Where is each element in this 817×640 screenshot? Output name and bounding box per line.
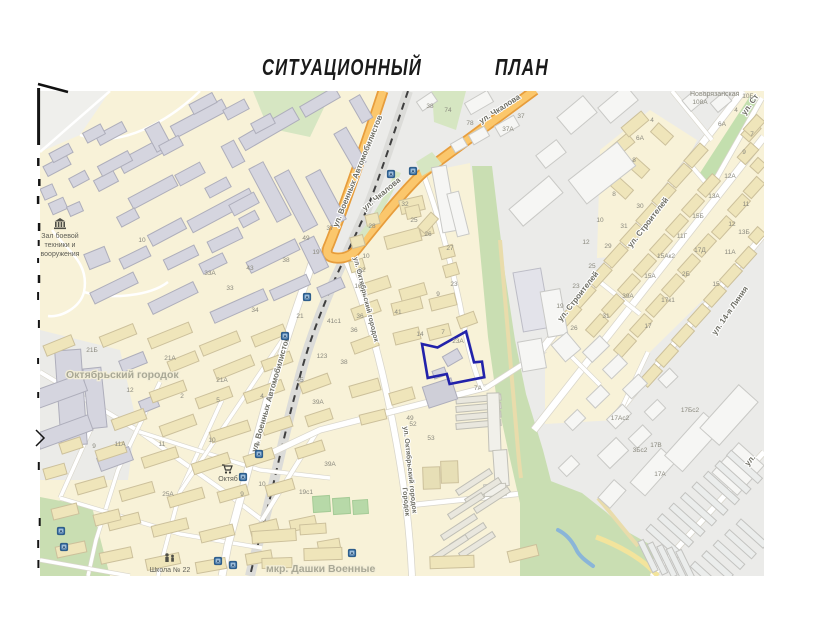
svg-text:25: 25 xyxy=(588,263,596,270)
svg-text:4: 4 xyxy=(650,117,654,124)
svg-text:10: 10 xyxy=(258,481,266,488)
svg-text:15Ак2: 15Ак2 xyxy=(657,253,675,260)
svg-text:39А: 39А xyxy=(622,293,634,300)
svg-text:21: 21 xyxy=(296,313,304,320)
svg-text:15А: 15А xyxy=(644,273,656,280)
svg-text:37: 37 xyxy=(326,225,334,232)
svg-text:26: 26 xyxy=(570,325,578,332)
svg-text:Школа № 22: Школа № 22 xyxy=(150,567,191,574)
svg-text:11Г: 11Г xyxy=(677,233,688,240)
svg-text:10: 10 xyxy=(596,217,604,224)
svg-text:26: 26 xyxy=(424,231,432,238)
svg-text:21А: 21А xyxy=(216,377,228,384)
svg-text:11: 11 xyxy=(743,201,750,208)
svg-text:41: 41 xyxy=(394,309,402,316)
svg-text:8: 8 xyxy=(256,441,260,448)
svg-text:30: 30 xyxy=(636,203,644,210)
svg-text:12: 12 xyxy=(728,221,736,228)
svg-text:53: 53 xyxy=(427,435,435,442)
svg-text:17А: 17А xyxy=(654,471,666,478)
svg-text:33А: 33А xyxy=(204,270,216,277)
svg-text:78: 78 xyxy=(466,120,474,127)
svg-text:16: 16 xyxy=(354,283,362,290)
svg-text:36: 36 xyxy=(350,327,358,334)
svg-text:14: 14 xyxy=(416,331,424,338)
svg-text:27: 27 xyxy=(446,245,454,252)
svg-text:8: 8 xyxy=(612,191,616,198)
svg-text:вооружения: вооружения xyxy=(41,251,80,258)
svg-text:ПЛАН: ПЛАН xyxy=(495,56,549,81)
svg-text:36: 36 xyxy=(356,313,364,320)
svg-text:19: 19 xyxy=(556,303,564,310)
svg-text:Новорязанская: Новорязанская xyxy=(690,91,740,98)
svg-text:32: 32 xyxy=(401,201,409,208)
svg-text:38: 38 xyxy=(426,103,434,110)
svg-text:37: 37 xyxy=(517,113,525,120)
svg-text:17Ас2: 17Ас2 xyxy=(611,415,630,422)
svg-text:6А: 6А xyxy=(718,121,727,128)
svg-text:17Бс2: 17Бс2 xyxy=(681,407,700,414)
svg-text:12А: 12А xyxy=(724,173,736,180)
svg-text:45: 45 xyxy=(296,377,304,384)
svg-text:5: 5 xyxy=(216,397,220,404)
svg-text:23: 23 xyxy=(450,281,458,288)
svg-text:9: 9 xyxy=(240,491,244,498)
svg-text:21А: 21А xyxy=(164,355,176,362)
svg-text:13Б: 13Б xyxy=(738,229,750,236)
svg-text:34: 34 xyxy=(251,307,259,314)
svg-text:4: 4 xyxy=(260,393,264,400)
svg-text:19с1: 19с1 xyxy=(299,489,313,496)
svg-text:Зал боевой: Зал боевой xyxy=(41,232,78,240)
svg-text:СИТУАЦИОННЫЙ: СИТУАЦИОННЫЙ xyxy=(262,53,422,80)
svg-text:10Б: 10Б xyxy=(742,93,754,100)
svg-text:19: 19 xyxy=(312,249,320,256)
svg-text:38: 38 xyxy=(282,257,290,264)
svg-text:22: 22 xyxy=(358,267,366,274)
svg-text:9: 9 xyxy=(742,149,746,156)
svg-text:6А: 6А xyxy=(636,135,645,142)
svg-text:техники и: техники и xyxy=(45,242,76,249)
svg-text:7: 7 xyxy=(750,131,754,138)
svg-text:Октяб: Октяб xyxy=(218,475,238,483)
svg-text:10: 10 xyxy=(208,437,216,444)
svg-text:25А: 25А xyxy=(162,491,174,498)
svg-text:39А: 39А xyxy=(324,461,336,468)
svg-text:28: 28 xyxy=(368,223,376,230)
svg-text:29: 29 xyxy=(604,243,612,250)
svg-text:15: 15 xyxy=(712,281,720,288)
svg-text:31: 31 xyxy=(602,313,610,320)
svg-text:108А: 108А xyxy=(692,99,708,106)
svg-text:39А: 39А xyxy=(312,399,324,406)
svg-text:7А: 7А xyxy=(474,385,483,392)
svg-text:7: 7 xyxy=(441,329,445,336)
svg-text:49: 49 xyxy=(302,235,310,242)
svg-text:17В: 17В xyxy=(650,442,662,449)
svg-text:2Б: 2Б xyxy=(682,271,690,278)
svg-text:23: 23 xyxy=(572,283,580,290)
svg-text:4: 4 xyxy=(734,107,738,114)
svg-text:мкр. Дашки Военные: мкр. Дашки Военные xyxy=(266,563,375,575)
svg-text:3Бс2: 3Бс2 xyxy=(633,447,648,454)
svg-text:17: 17 xyxy=(644,323,652,330)
svg-text:12: 12 xyxy=(126,387,134,394)
svg-text:123: 123 xyxy=(317,353,328,360)
svg-text:11А: 11А xyxy=(114,441,126,448)
svg-text:43: 43 xyxy=(246,265,254,272)
svg-text:37А: 37А xyxy=(502,126,514,133)
svg-text:17Д: 17Д xyxy=(694,247,706,254)
svg-text:13А: 13А xyxy=(708,193,720,200)
svg-text:74: 74 xyxy=(444,107,452,114)
svg-text:33: 33 xyxy=(226,285,234,292)
svg-text:12: 12 xyxy=(582,239,590,246)
svg-text:41с1: 41с1 xyxy=(327,318,341,325)
svg-text:10: 10 xyxy=(362,253,370,260)
svg-text:17к1: 17к1 xyxy=(661,297,675,304)
svg-text:10: 10 xyxy=(138,237,146,244)
svg-text:23А: 23А xyxy=(452,338,464,345)
svg-text:25: 25 xyxy=(410,217,418,224)
svg-text:8: 8 xyxy=(632,157,636,164)
svg-text:9: 9 xyxy=(92,443,96,450)
svg-text:2: 2 xyxy=(180,393,184,400)
svg-text:9: 9 xyxy=(436,291,440,298)
svg-text:15Б: 15Б xyxy=(692,213,704,220)
svg-text:11А: 11А xyxy=(724,249,736,256)
svg-text:38: 38 xyxy=(340,359,348,366)
svg-text:11: 11 xyxy=(159,441,166,448)
svg-text:31: 31 xyxy=(620,223,628,230)
svg-text:Октябрьский городок: Октябрьский городок xyxy=(66,369,179,381)
svg-text:21Б: 21Б xyxy=(86,347,98,354)
svg-text:52: 52 xyxy=(409,421,417,428)
